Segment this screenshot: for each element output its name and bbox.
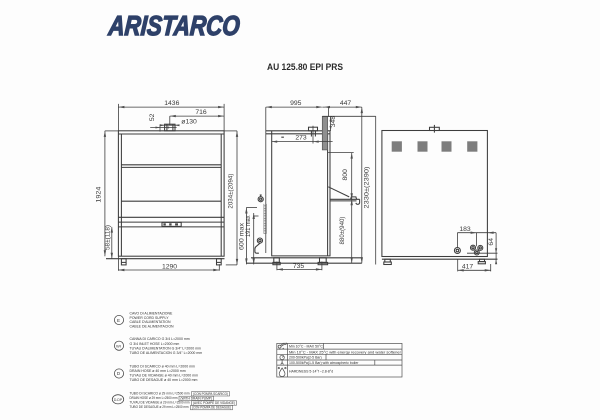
svg-text:58±(118): 58±(118) xyxy=(106,225,112,250)
svg-text:TUYAU D'ALIMENTATION G 3/4" L=: TUYAU D'ALIMENTATION G 3/4" L=2000 mm xyxy=(130,346,202,350)
svg-text:(AVEC POMPE DE VIDANGE): (AVEC POMPE DE VIDANGE) xyxy=(193,401,235,405)
svg-text:735: 735 xyxy=(293,263,305,270)
svg-text:DRAIN HOSE ø 29 mm L=2500 mm: DRAIN HOSE ø 29 mm L=2500 mm xyxy=(130,396,178,400)
svg-text:(CON POMPA SCARICO): (CON POMPA SCARICO) xyxy=(193,392,228,396)
svg-text:TUBO DE ALIMENTACION G 3/4" L=: TUBO DE ALIMENTACION G 3/4" L=2000 mm xyxy=(130,351,203,355)
svg-text:TUBO DI SCARICO ø 40 mm L=2000: TUBO DI SCARICO ø 40 mm L=2000 mm xyxy=(130,364,196,368)
svg-text:TUBO DI SCARICO ø 29 mm L=2500: TUBO DI SCARICO ø 29 mm L=2500 mm xyxy=(130,391,190,395)
svg-text:G 3/4 INLET HOSE L=2000 mm: G 3/4 INLET HOSE L=2000 mm xyxy=(130,342,180,346)
svg-text:1290: 1290 xyxy=(162,263,177,270)
svg-text:E: E xyxy=(117,318,120,323)
svg-text:880±(940): 880±(940) xyxy=(339,217,346,245)
svg-text:ARISTARCO: ARISTARCO xyxy=(107,10,241,41)
svg-text:447: 447 xyxy=(340,100,352,107)
svg-text:716: 716 xyxy=(195,109,207,116)
svg-text:ø130: ø130 xyxy=(181,118,197,125)
svg-text:TUYAU DE VIDANGE ø 40 mm L=200: TUYAU DE VIDANGE ø 40 mm L=2000 mm xyxy=(130,374,199,378)
svg-text:CABLE DE ALIMENTACION: CABLE DE ALIMENTACION xyxy=(130,324,175,328)
svg-text:TUBO DE DESAGUE ø 29 mm L=2500: TUBO DE DESAGUE ø 29 mm L=2500 mm xyxy=(130,405,189,409)
svg-text:HARDNESS 5-14°f ~2.8-8°d: HARDNESS 5-14°f ~2.8-8°d xyxy=(289,369,333,373)
svg-text:800: 800 xyxy=(342,169,349,181)
svg-text:1924: 1924 xyxy=(95,186,102,202)
svg-text:1436: 1436 xyxy=(164,100,179,107)
svg-text:CANNA DI CARICO G 3/4 L=2000 m: CANNA DI CARICO G 3/4 L=2000 mm xyxy=(130,337,190,341)
svg-text:348: 348 xyxy=(331,115,337,127)
svg-text:WI: WI xyxy=(116,343,121,348)
svg-text:2330±(2390): 2330±(2390) xyxy=(363,167,370,209)
svg-text:191 max: 191 max xyxy=(246,215,252,237)
svg-text:273: 273 xyxy=(295,134,307,141)
svg-text:600 max: 600 max xyxy=(239,223,245,250)
svg-text:64: 64 xyxy=(488,238,495,246)
svg-text:995: 995 xyxy=(290,100,302,107)
svg-text:2034±(2094): 2034±(2094) xyxy=(227,174,234,209)
svg-text:Min 10°C - MAX 50°C: Min 10°C - MAX 50°C xyxy=(289,345,323,349)
svg-text:183: 183 xyxy=(459,226,471,233)
svg-text:TUBO DE DESAGUE ø 40 mm L=2000: TUBO DE DESAGUE ø 40 mm L=2000 mm xyxy=(130,378,198,382)
svg-text:(CON POMPA DE DESAGUE): (CON POMPA DE DESAGUE) xyxy=(192,406,231,410)
svg-text:TUYAU DE VIDANGE ø 29 mm L=250: TUYAU DE VIDANGE ø 29 mm L=2500 mm xyxy=(130,401,190,405)
svg-text:52: 52 xyxy=(149,113,156,121)
svg-text:100-500kPa(1-5 Bar) with atmos: 100-500kPa(1-5 Bar) with atmospheric boi… xyxy=(289,361,359,365)
svg-text:D-DP: D-DP xyxy=(114,398,123,402)
svg-text:AU 125.80 EPI PRS: AU 125.80 EPI PRS xyxy=(267,62,344,73)
svg-text:Min 10°C - MAX 25°C with energ: Min 10°C - MAX 25°C with energy recovery… xyxy=(289,350,402,354)
svg-text:417: 417 xyxy=(462,263,474,270)
svg-text:200-500kPa(2-5 Bar): 200-500kPa(2-5 Bar) xyxy=(289,356,322,360)
svg-text:D: D xyxy=(117,371,121,376)
svg-text:DRAIN HOSE ø 40 mm L=2000 mm: DRAIN HOSE ø 40 mm L=2000 mm xyxy=(130,369,186,373)
